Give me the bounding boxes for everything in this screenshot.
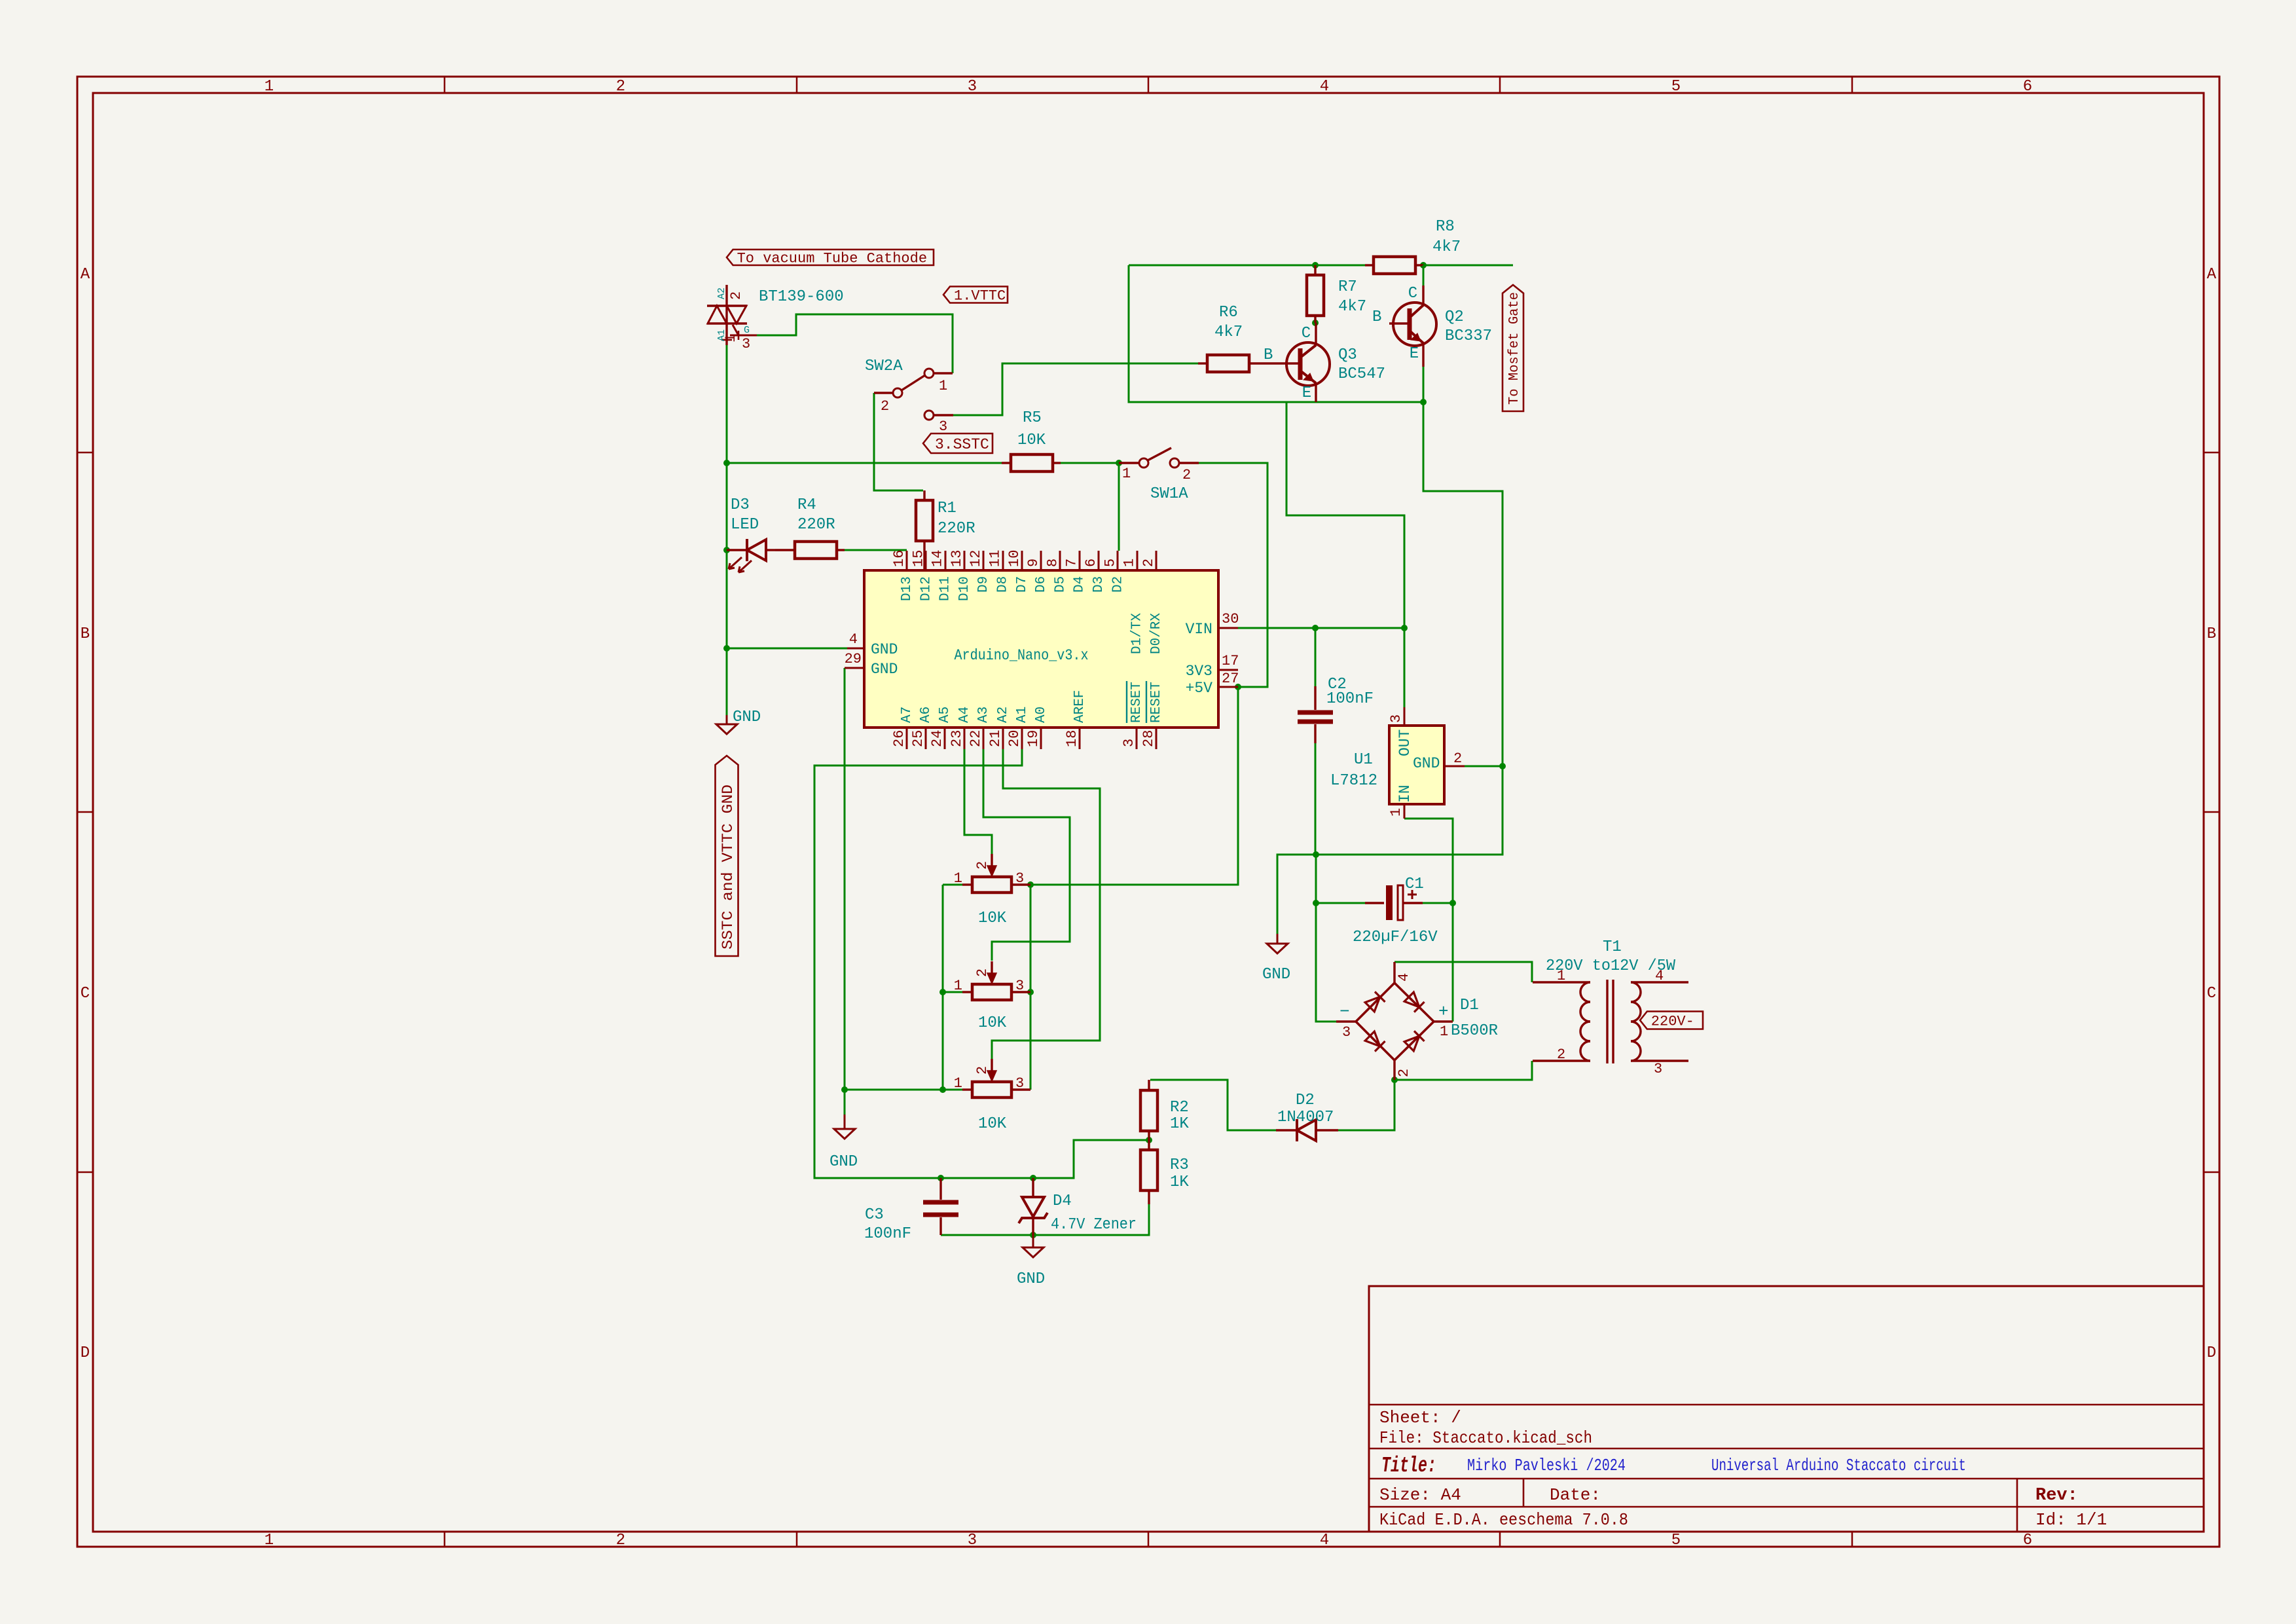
svg-text:GND: GND <box>1413 755 1440 772</box>
svg-text:6: 6 <box>1083 559 1099 567</box>
svg-text:4k7: 4k7 <box>1432 238 1461 256</box>
svg-text:11: 11 <box>987 550 1004 567</box>
svg-text:2: 2 <box>1557 1046 1565 1063</box>
svg-text:R1: R1 <box>938 500 957 517</box>
svg-text:D12: D12 <box>919 576 934 601</box>
svg-text:1: 1 <box>954 1075 962 1092</box>
svg-text:D: D <box>81 1344 90 1362</box>
svg-text:10K: 10K <box>1017 432 1046 449</box>
svg-text:GND: GND <box>829 1153 858 1171</box>
svg-text:Arduino_Nano_v3.x: Arduino_Nano_v3.x <box>955 647 1089 664</box>
svg-text:G: G <box>744 325 750 336</box>
svg-text:6: 6 <box>2023 1532 2032 1549</box>
svg-text:BT139-600: BT139-600 <box>759 288 844 306</box>
svg-text:R6: R6 <box>1219 304 1238 322</box>
svg-text:KiCad E.D.A. eeschema 7.0.8: KiCad E.D.A. eeschema 7.0.8 <box>1379 1510 1628 1530</box>
svg-text:3: 3 <box>968 1532 977 1549</box>
svg-text:D10: D10 <box>957 576 972 601</box>
svg-text:D3: D3 <box>731 496 750 514</box>
svg-text:D8: D8 <box>996 576 1011 593</box>
svg-text:B500R: B500R <box>1451 1022 1498 1040</box>
svg-text:R5: R5 <box>1023 409 1042 427</box>
svg-text:16: 16 <box>891 550 907 567</box>
svg-text:A2: A2 <box>716 287 727 299</box>
svg-text:SSTC and VTTC GND: SSTC and VTTC GND <box>720 784 737 950</box>
svg-text:19: 19 <box>1025 730 1042 747</box>
svg-text:D7: D7 <box>1015 576 1030 593</box>
svg-text:D5: D5 <box>1053 576 1068 593</box>
svg-text:27: 27 <box>1222 671 1239 687</box>
svg-text:9: 9 <box>1025 559 1042 567</box>
svg-text:3.SSTC: 3.SSTC <box>935 436 989 453</box>
svg-text:B: B <box>81 625 90 643</box>
svg-text:220R: 220R <box>797 516 835 534</box>
svg-text:A: A <box>2207 266 2217 284</box>
svg-text:100nF: 100nF <box>864 1225 911 1243</box>
svg-text:13: 13 <box>949 550 965 567</box>
svg-text:2: 2 <box>616 78 625 96</box>
svg-text:220µF/16V: 220µF/16V <box>1353 929 1438 946</box>
svg-text:3: 3 <box>1015 870 1024 887</box>
svg-text:R3: R3 <box>1170 1156 1189 1174</box>
svg-text:14: 14 <box>930 550 946 567</box>
svg-text:OUT: OUT <box>1396 729 1413 756</box>
svg-text:BC337: BC337 <box>1445 327 1492 345</box>
svg-text:D4: D4 <box>1072 576 1087 593</box>
svg-text:D2: D2 <box>1296 1092 1315 1109</box>
svg-text:3: 3 <box>939 418 947 435</box>
svg-text:GND: GND <box>1262 966 1290 984</box>
svg-text:3: 3 <box>742 336 750 352</box>
svg-text:7: 7 <box>1064 559 1080 567</box>
svg-text:3V3: 3V3 <box>1186 663 1212 680</box>
svg-text:3: 3 <box>1121 739 1137 747</box>
svg-text:2: 2 <box>616 1532 625 1549</box>
svg-text:12: 12 <box>968 550 984 567</box>
svg-text:R7: R7 <box>1338 278 1357 296</box>
svg-text:A7: A7 <box>900 707 915 723</box>
svg-text:D6: D6 <box>1034 576 1049 593</box>
svg-text:Id: 1/1: Id: 1/1 <box>2035 1510 2107 1530</box>
svg-text:220V-: 220V- <box>1651 1013 1694 1029</box>
svg-text:28: 28 <box>1140 730 1157 747</box>
svg-text:5: 5 <box>1102 559 1118 567</box>
svg-text:Sheet: /: Sheet: / <box>1379 1408 1461 1428</box>
svg-text:B: B <box>1264 346 1273 364</box>
svg-text:Universal Arduino Staccato cir: Universal Arduino Staccato circuit <box>1711 1456 1966 1475</box>
svg-text:2: 2 <box>974 969 991 977</box>
svg-text:2: 2 <box>974 1066 991 1075</box>
svg-text:2: 2 <box>974 861 991 870</box>
svg-text:Q2: Q2 <box>1445 308 1464 326</box>
svg-text:To vacuum Tube Cathode: To vacuum Tube Cathode <box>737 250 927 267</box>
svg-text:2: 2 <box>1140 559 1157 567</box>
svg-text:3: 3 <box>1015 978 1024 994</box>
svg-text:3: 3 <box>968 78 977 96</box>
svg-text:D11: D11 <box>938 576 953 601</box>
svg-text:2: 2 <box>1182 467 1191 483</box>
svg-text:AREF: AREF <box>1072 690 1087 723</box>
svg-text:18: 18 <box>1064 730 1080 747</box>
svg-text:1K: 1K <box>1170 1115 1189 1133</box>
svg-text:RESET: RESET <box>1129 682 1144 723</box>
svg-text:D4: D4 <box>1053 1192 1072 1210</box>
svg-text:D0/RX: D0/RX <box>1149 613 1164 654</box>
svg-text:D13: D13 <box>900 576 915 601</box>
svg-text:10K: 10K <box>978 1115 1007 1133</box>
svg-text:Size: A4: Size: A4 <box>1379 1485 1461 1505</box>
svg-text:+5V: +5V <box>1186 680 1213 697</box>
svg-text:Title:: Title: <box>1381 1454 1436 1478</box>
svg-text:1K: 1K <box>1170 1173 1189 1191</box>
svg-text:E: E <box>1410 345 1419 363</box>
svg-text:1: 1 <box>264 1532 274 1549</box>
svg-text:BC547: BC547 <box>1338 365 1385 383</box>
svg-text:5: 5 <box>1671 1532 1681 1549</box>
svg-text:Date:: Date: <box>1550 1485 1601 1505</box>
svg-text:4: 4 <box>1396 973 1412 982</box>
svg-text:C: C <box>1408 285 1417 303</box>
svg-text:1: 1 <box>1440 1024 1448 1040</box>
svg-text:1N4007: 1N4007 <box>1277 1109 1334 1126</box>
svg-text:100nF: 100nF <box>1326 690 1374 708</box>
svg-text:C1: C1 <box>1405 876 1424 893</box>
svg-text:20: 20 <box>1006 730 1023 747</box>
svg-text:1: 1 <box>1122 466 1131 482</box>
svg-text:B: B <box>2207 625 2216 643</box>
svg-text:1: 1 <box>1121 559 1138 567</box>
svg-text:21: 21 <box>987 730 1004 747</box>
svg-text:220R: 220R <box>938 520 975 538</box>
svg-text:GND: GND <box>733 709 761 726</box>
svg-text:File: Staccato.kicad_sch: File: Staccato.kicad_sch <box>1379 1428 1592 1448</box>
svg-text:29: 29 <box>845 651 862 667</box>
svg-text:4: 4 <box>1320 1532 1329 1549</box>
svg-text:4: 4 <box>1320 78 1329 96</box>
svg-text:Q3: Q3 <box>1338 346 1357 364</box>
svg-text:2: 2 <box>881 398 889 415</box>
svg-text:4: 4 <box>1655 968 1664 984</box>
svg-text:+: + <box>1438 1002 1449 1022</box>
svg-text:5: 5 <box>1671 78 1681 96</box>
svg-text:23: 23 <box>949 730 965 747</box>
svg-text:A4: A4 <box>957 707 972 723</box>
svg-text:D9: D9 <box>976 576 991 593</box>
svg-text:D3: D3 <box>1091 576 1106 593</box>
svg-text:1: 1 <box>954 870 962 887</box>
svg-text:6: 6 <box>2023 78 2032 96</box>
svg-text:D2: D2 <box>1110 576 1125 593</box>
svg-text:8: 8 <box>1044 559 1061 567</box>
svg-text:10K: 10K <box>978 1014 1007 1032</box>
svg-text:3: 3 <box>1388 714 1404 723</box>
svg-text:1: 1 <box>954 978 962 994</box>
svg-text:SW1A: SW1A <box>1150 485 1188 503</box>
svg-text:26: 26 <box>891 730 907 747</box>
svg-text:A3: A3 <box>976 707 991 723</box>
svg-text:2: 2 <box>1396 1069 1412 1077</box>
svg-text:Mirko Pavleski /2024: Mirko Pavleski /2024 <box>1467 1456 1626 1475</box>
svg-text:D: D <box>2207 1344 2216 1362</box>
svg-text:B: B <box>1372 308 1381 326</box>
svg-text:3: 3 <box>1015 1075 1024 1092</box>
svg-text:E: E <box>1302 384 1311 402</box>
svg-text:R8: R8 <box>1436 218 1455 236</box>
svg-text:1: 1 <box>939 378 947 394</box>
svg-text:A0: A0 <box>1034 707 1049 723</box>
svg-text:VIN: VIN <box>1186 621 1212 638</box>
svg-text:C: C <box>1302 325 1311 342</box>
svg-text:R2: R2 <box>1170 1099 1189 1116</box>
svg-text:3: 3 <box>1342 1024 1351 1041</box>
svg-text:GND: GND <box>1017 1270 1045 1288</box>
svg-text:Rev:: Rev: <box>2035 1486 2078 1505</box>
svg-text:GND: GND <box>871 641 898 658</box>
svg-text:U1: U1 <box>1354 751 1373 769</box>
svg-text:3: 3 <box>1654 1061 1662 1077</box>
svg-text:To Mosfet Gate: To Mosfet Gate <box>1507 292 1522 405</box>
svg-text:2: 2 <box>728 291 744 300</box>
svg-text:2: 2 <box>1453 750 1462 767</box>
svg-text:GND: GND <box>871 661 898 678</box>
svg-text:R4: R4 <box>797 496 816 514</box>
svg-text:−: − <box>1339 1002 1350 1022</box>
svg-text:C: C <box>81 985 90 1003</box>
svg-text:24: 24 <box>929 730 945 747</box>
svg-text:T1: T1 <box>1603 938 1622 956</box>
svg-text:C: C <box>2207 985 2216 1003</box>
svg-text:4.7V Zener: 4.7V Zener <box>1051 1216 1137 1234</box>
svg-text:A5: A5 <box>938 707 953 723</box>
svg-text:D1: D1 <box>1460 997 1479 1014</box>
svg-text:4k7: 4k7 <box>1214 323 1243 341</box>
svg-text:A1: A1 <box>716 329 727 341</box>
svg-text:10K: 10K <box>978 910 1007 927</box>
svg-text:D1/TX: D1/TX <box>1130 613 1145 654</box>
svg-text:A1: A1 <box>1015 707 1030 723</box>
svg-text:A2: A2 <box>996 707 1011 723</box>
svg-text:1: 1 <box>264 78 274 96</box>
svg-text:1: 1 <box>1388 808 1404 817</box>
svg-text:SW2A: SW2A <box>865 358 903 375</box>
svg-text:10: 10 <box>1006 550 1023 567</box>
svg-text:30: 30 <box>1222 611 1239 627</box>
svg-text:A: A <box>81 266 90 284</box>
svg-text:LED: LED <box>731 516 759 534</box>
svg-text:17: 17 <box>1222 653 1239 669</box>
svg-text:IN: IN <box>1396 784 1413 803</box>
svg-text:L7812: L7812 <box>1330 772 1377 790</box>
svg-text:25: 25 <box>910 730 926 747</box>
svg-text:1: 1 <box>1557 968 1565 984</box>
svg-text:15: 15 <box>910 550 926 567</box>
svg-text:4k7: 4k7 <box>1338 298 1366 316</box>
svg-text:1.VTTC: 1.VTTC <box>954 287 1006 304</box>
svg-text:22: 22 <box>968 730 984 747</box>
svg-text:RESET: RESET <box>1149 682 1164 723</box>
svg-text:4: 4 <box>849 631 858 648</box>
svg-text:A6: A6 <box>919 707 934 723</box>
svg-text:C3: C3 <box>865 1206 884 1224</box>
